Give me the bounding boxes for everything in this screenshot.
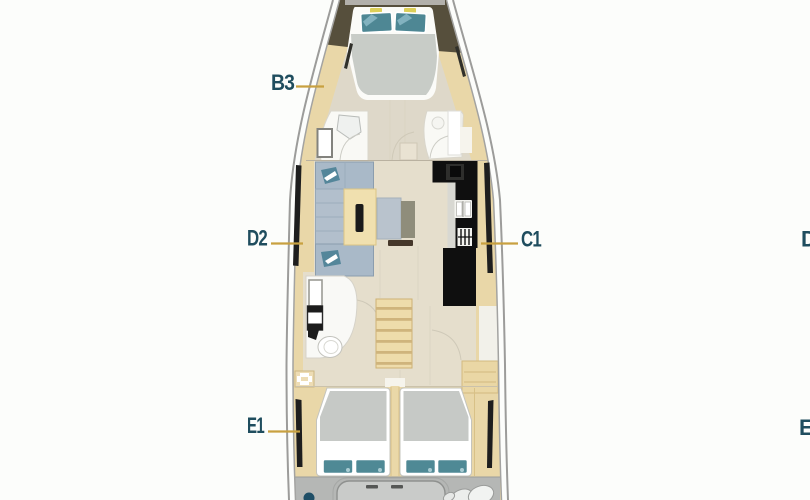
svg-text:D: D: [801, 227, 810, 252]
svg-text:B3: B3: [271, 70, 295, 95]
svg-text:C1: C1: [521, 227, 542, 252]
svg-text:E1: E1: [247, 413, 265, 438]
svg-text:D2: D2: [247, 226, 268, 251]
svg-text:E: E: [799, 415, 810, 440]
